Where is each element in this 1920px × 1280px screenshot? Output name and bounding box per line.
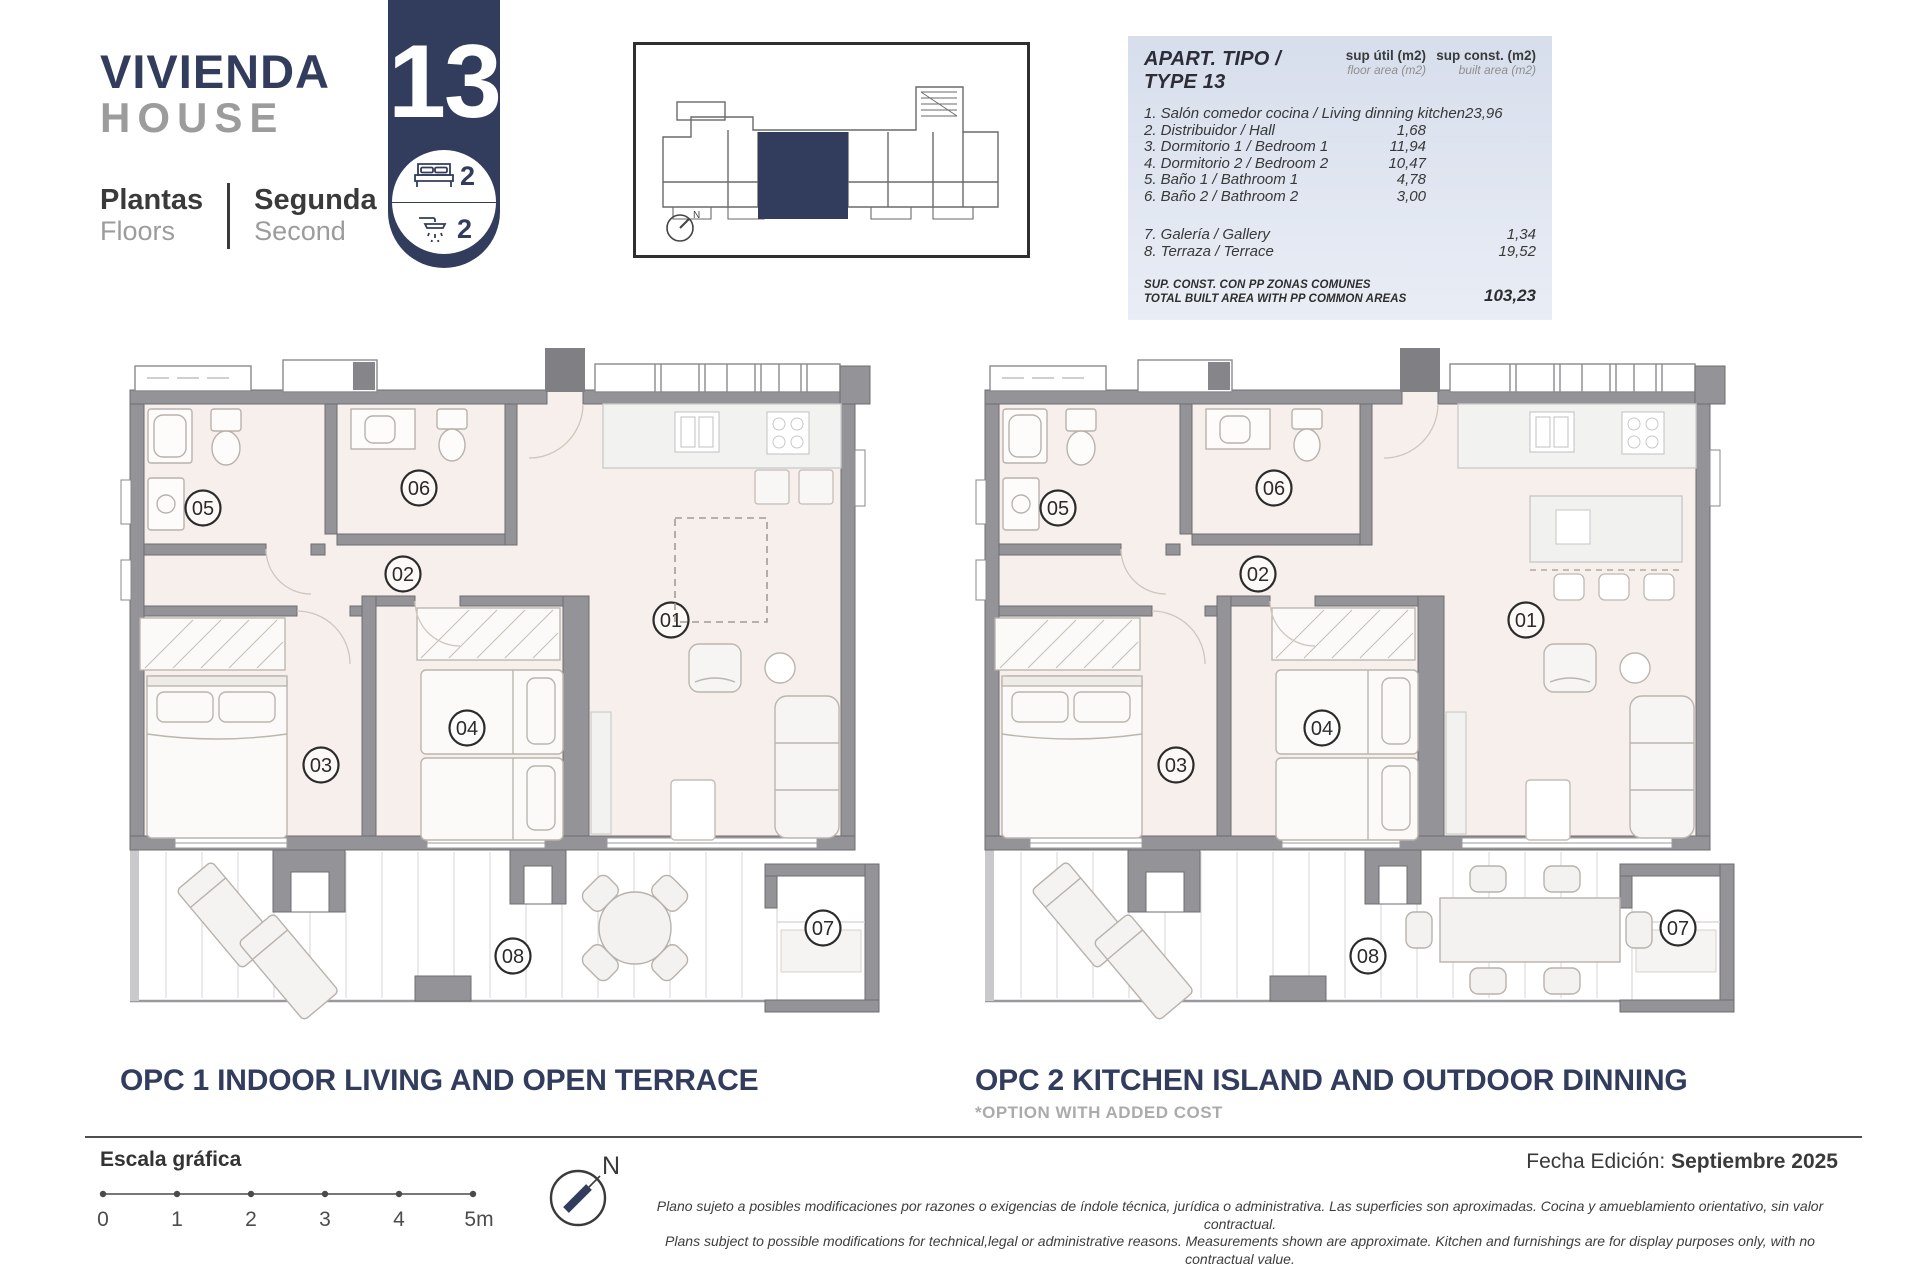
col-floor-area-label: sup útil (m2) — [1324, 48, 1426, 64]
area-table-title: APART. TIPO / TYPE 13 — [1144, 48, 1324, 94]
unit-ribbon: 13 2 — [388, 0, 500, 268]
scale-bar: 0 1 2 3 4 5m — [95, 1180, 495, 1243]
edition-label: Fecha Edición: — [1526, 1150, 1665, 1173]
stool — [1644, 574, 1674, 600]
col-floor-area-sublabel: floor area (m2) — [1324, 64, 1426, 78]
area-rows-main: 1. Salón comedor cocina / Living dinning… — [1144, 106, 1536, 205]
scale-tick: 4 — [393, 1208, 405, 1231]
table-row: 3. Dormitorio 1 / Bedroom 1 11,94 — [1144, 139, 1536, 156]
bed-bath-badge: 2 2 — [392, 150, 496, 254]
footer-divider — [85, 1136, 1862, 1138]
col-built-area-sublabel: built area (m2) — [1426, 64, 1536, 78]
table-row: 8. Terraza / Terrace 19,52 — [1144, 244, 1536, 261]
brand-block: VIVIENDA HOUSE — [100, 48, 330, 140]
table-row: 6. Baño 2 / Bathroom 2 3,00 — [1144, 189, 1536, 206]
floor-plan-opc2 — [970, 320, 1760, 1025]
total-label-es: SUP. CONST. CON PP ZONAS COMUNES — [1144, 278, 1484, 292]
stool — [1554, 574, 1584, 600]
opc2-title: OPC 2 KITCHEN ISLAND AND OUTDOOR DINNING — [975, 1064, 1688, 1098]
svg-text:N: N — [693, 210, 700, 221]
floor-value-es: Segunda — [254, 185, 376, 217]
dining-chair — [755, 470, 789, 504]
table-row: 2. Distribuidor / Hall 1,68 — [1144, 123, 1536, 140]
page-title: VIVIENDA — [100, 48, 330, 96]
floor-plan-opc1 — [115, 320, 905, 1025]
table-row: 4. Dormitorio 2 / Bedroom 2 10,47 — [1144, 156, 1536, 173]
north-label: N — [602, 1154, 620, 1180]
plan-sheet: VIVIENDA HOUSE Plantas Floors Segunda Se… — [0, 0, 1920, 1280]
edition-date: Fecha Edición: Septiembre 2025 — [1526, 1150, 1838, 1174]
disclaimer: Plano sujeto a posibles modificaciones p… — [640, 1198, 1840, 1268]
scale-label: Escala gráfica — [100, 1148, 241, 1172]
north-arrow-icon: N — [540, 1154, 624, 1243]
page-title-en: HOUSE — [100, 96, 330, 140]
floor-indicator: Plantas Floors Segunda Second — [100, 183, 377, 249]
bathroom-count: 2 — [457, 214, 472, 245]
scale-tick: 3 — [319, 1208, 331, 1231]
opc2-caption: OPC 2 KITCHEN ISLAND AND OUTDOOR DINNING… — [975, 1064, 1688, 1123]
opc2-subtitle: *OPTION WITH ADDED COST — [975, 1103, 1688, 1123]
opc1-caption: OPC 1 INDOOR LIVING AND OPEN TERRACE — [120, 1064, 758, 1098]
divider — [227, 183, 230, 249]
table-row: 1. Salón comedor cocina / Living dinning… — [1144, 106, 1536, 123]
edition-value: Septiembre 2025 — [1671, 1150, 1838, 1173]
shower-icon — [416, 213, 452, 245]
floor-value-en: Second — [254, 217, 376, 247]
scale-tick: 0 — [97, 1208, 109, 1231]
scale-tick: 1 — [171, 1208, 183, 1231]
col-built-area-label: sup const. (m2) — [1426, 48, 1536, 64]
area-rows-exterior: 7. Galería / Gallery 1,34 8. Terraza / T… — [1144, 227, 1536, 260]
area-table: APART. TIPO / TYPE 13 sup útil (m2) floo… — [1128, 36, 1552, 320]
dining-chair — [799, 470, 833, 504]
opc1-title: OPC 1 INDOOR LIVING AND OPEN TERRACE — [120, 1064, 758, 1098]
total-built-area: 103,23 — [1484, 286, 1536, 306]
floors-label-es: Plantas — [100, 185, 203, 217]
key-plan: N — [633, 42, 1030, 263]
stool — [1599, 574, 1629, 600]
floors-label-en: Floors — [100, 217, 203, 247]
disclaimer-es: Plano sujeto a posibles modificaciones p… — [640, 1198, 1840, 1233]
scale-tick: 2 — [245, 1208, 257, 1231]
table-row: 5. Baño 1 / Bathroom 1 4,78 — [1144, 172, 1536, 189]
scale-tick: 5m — [464, 1208, 493, 1231]
total-label-en: TOTAL BUILT AREA WITH PP COMMON AREAS — [1144, 292, 1484, 306]
disclaimer-en: Plans subject to possible modifications … — [640, 1233, 1840, 1268]
table-row: 7. Galería / Gallery 1,34 — [1144, 227, 1536, 244]
bed-icon — [413, 161, 455, 191]
bedroom-count: 2 — [460, 161, 475, 192]
unit-number: 13 — [388, 30, 500, 134]
highlighted-unit — [758, 132, 848, 219]
